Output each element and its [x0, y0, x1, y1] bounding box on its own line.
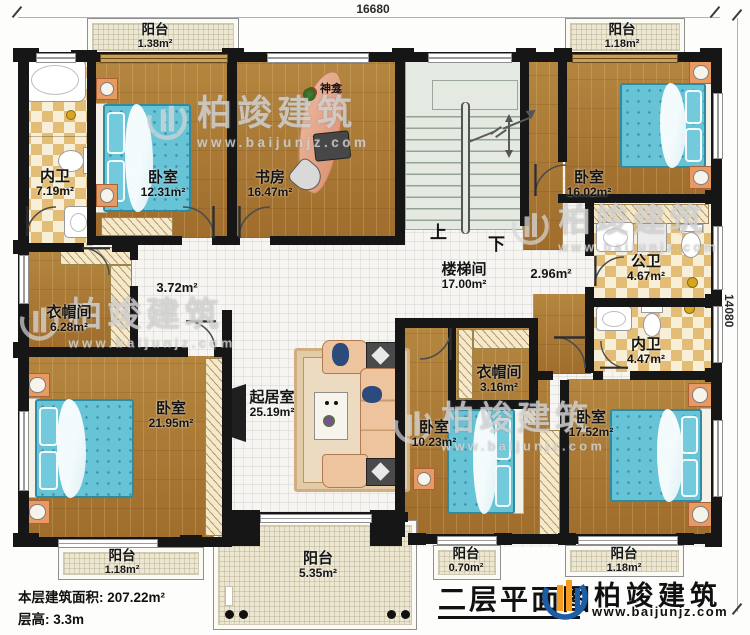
- table-decor-dot: [334, 401, 338, 405]
- wall: [130, 248, 138, 260]
- lamp: [692, 506, 708, 522]
- window: [713, 420, 723, 497]
- room-label-bedroom3: 卧室21.95m²: [149, 400, 194, 431]
- lamp: [692, 387, 708, 403]
- pillow: [107, 112, 125, 154]
- wall: [18, 347, 188, 357]
- balcony-gate-mark: [225, 586, 233, 606]
- wardrobe-cloak1-right: [110, 265, 132, 349]
- computer-monitor: [313, 130, 352, 162]
- wall-pier: [676, 533, 694, 545]
- wall: [222, 310, 232, 537]
- wall: [585, 203, 594, 256]
- balcony-label-br1: 阳台0.70m²: [449, 546, 484, 574]
- lamp: [693, 170, 709, 185]
- balcony-label-tr: 阳台1.18m²: [605, 22, 640, 50]
- room-label-living: 起居室25.19m²: [249, 389, 294, 420]
- room-label-bedroom1: 卧室12.31m²: [141, 169, 186, 200]
- sink-basin: [603, 228, 628, 247]
- wall: [529, 328, 538, 409]
- toilet-tank: [679, 224, 703, 232]
- wall-pier: [554, 48, 572, 62]
- bed: [447, 409, 515, 514]
- stairs-up-label: 上: [430, 218, 447, 243]
- pillow: [495, 465, 511, 507]
- balcony-label-br2: 阳台1.18m²: [607, 546, 642, 574]
- lamp: [693, 65, 709, 80]
- window: [428, 53, 512, 63]
- stair-flight-arrow: [508, 120, 510, 152]
- balcony-label-bc: 阳台5.35m²: [299, 550, 337, 581]
- wall: [558, 52, 567, 162]
- room-label-neiwei2: 内卫4.47m²: [627, 336, 665, 367]
- door-arc: [420, 328, 452, 360]
- lamp: [417, 472, 431, 486]
- stair-landing: [432, 80, 518, 110]
- stairs-down-label: 下: [488, 230, 505, 255]
- wardrobe-bedroom1: [101, 217, 173, 236]
- toilet: [643, 313, 661, 337]
- side-table: [366, 458, 396, 486]
- window: [267, 53, 369, 63]
- wall: [87, 52, 96, 245]
- door-arc: [534, 164, 566, 196]
- balcony-column-dot: [401, 610, 410, 619]
- hall-floor-top-right: [523, 60, 563, 250]
- person: [362, 386, 382, 403]
- brand-logo-icon: [538, 570, 592, 624]
- pillow: [39, 451, 58, 490]
- floor-drain: [66, 110, 76, 120]
- side-table: [366, 342, 396, 370]
- floor-area-line: 本层建筑面积: 207.22m²: [18, 586, 165, 606]
- blanket: [473, 409, 497, 514]
- floor-height-label: 层高:: [18, 612, 50, 627]
- wall-pier: [13, 240, 29, 254]
- wall: [96, 236, 182, 245]
- wall: [585, 307, 594, 373]
- shower-tray: [637, 223, 667, 252]
- room-label-study: 书房16.47m²: [248, 169, 293, 200]
- window: [437, 536, 497, 545]
- window: [19, 255, 29, 304]
- pillow: [681, 459, 698, 497]
- balcony-column-dot: [225, 610, 234, 619]
- nightstand: [688, 502, 713, 527]
- shrine-plant: [303, 88, 316, 101]
- wall: [227, 52, 237, 245]
- pillow: [685, 128, 702, 162]
- wardrobe-cloak2-left: [458, 329, 473, 399]
- wall: [395, 52, 405, 245]
- wall: [593, 371, 603, 380]
- armchair: [322, 454, 368, 488]
- dimension-line-right: [737, 18, 738, 612]
- balcony-column-dot: [387, 610, 396, 619]
- closet-above-gongwei: [590, 204, 709, 224]
- wardrobe-between-bedrooms: [539, 430, 560, 536]
- nightstand: [689, 61, 713, 84]
- brand-url: www.baijunjz.com: [592, 604, 728, 619]
- sink-counter: [596, 222, 634, 252]
- window: [578, 536, 678, 545]
- window: [713, 93, 723, 159]
- side-table-decor: [371, 462, 389, 480]
- toilet-tank: [641, 306, 663, 313]
- stair-rail: [461, 102, 470, 234]
- floor-drain: [687, 277, 698, 288]
- toilet: [681, 232, 701, 258]
- wall: [585, 298, 722, 307]
- pillow: [685, 90, 702, 124]
- blanket: [657, 409, 683, 502]
- wall-pier: [228, 510, 260, 546]
- blanket: [57, 399, 86, 498]
- bed: [620, 83, 706, 168]
- door-arc: [82, 247, 110, 275]
- wall-pier: [13, 342, 29, 358]
- room-label-shrine: 神龛: [320, 80, 342, 96]
- sink-basin: [602, 311, 626, 327]
- wall-pier: [516, 48, 536, 62]
- wall: [520, 60, 529, 226]
- door-arc: [600, 341, 628, 369]
- door-arc: [554, 336, 586, 368]
- person: [332, 343, 349, 366]
- wall: [560, 380, 569, 537]
- room-label-cloak1: 衣帽间6.28m²: [46, 304, 91, 335]
- wardrobe-cloak2-top: [473, 329, 531, 349]
- floor-plan-page: 上 下 柏竣建筑 www.baijunjz.com 柏竣建筑 www.baiju…: [0, 0, 750, 635]
- lamp: [29, 504, 45, 520]
- floor-height-value: 3.3m: [53, 612, 84, 627]
- lamp: [100, 82, 114, 96]
- stair-arrowhead: [505, 114, 513, 122]
- room-label-bedroom5: 卧室17.52m²: [569, 409, 614, 440]
- floor-area-value: 207.22m²: [107, 590, 165, 605]
- wall-pier: [705, 368, 722, 382]
- wall: [212, 236, 240, 245]
- wall-pier: [180, 535, 202, 547]
- balcony-label-tl: 阳台1.38m²: [138, 22, 173, 50]
- nightstand: [413, 468, 435, 490]
- nightstand: [689, 166, 713, 189]
- balcony-label-bl: 阳台1.18m²: [105, 548, 140, 576]
- wall: [270, 236, 405, 245]
- floor-height-line: 层高: 3.3m: [18, 608, 84, 628]
- wall-pier: [700, 48, 722, 62]
- wall: [395, 328, 405, 537]
- balcony-column-dot: [239, 610, 248, 619]
- bathtub-basin: [31, 65, 79, 95]
- coffee-table: [314, 392, 348, 440]
- stair-arrowhead: [505, 150, 513, 158]
- wall: [448, 400, 538, 409]
- blanket: [660, 83, 686, 168]
- table-flowers: [323, 415, 335, 427]
- wall: [130, 286, 138, 350]
- balcony-door-sill: [572, 54, 678, 63]
- dimension-top-value: 16680: [343, 2, 403, 16]
- door-arc: [26, 206, 56, 236]
- sink-counter: [596, 306, 632, 331]
- bathtub: [24, 58, 86, 102]
- nightstand: [96, 184, 118, 207]
- nightstand: [688, 383, 712, 407]
- room-label-stairwell: 楼梯间17.00m²: [441, 261, 486, 292]
- dimension-line-top: [18, 17, 720, 18]
- dimension-right-value: 14080: [722, 294, 736, 327]
- window: [19, 411, 29, 491]
- pillow: [39, 407, 58, 446]
- bed: [610, 409, 702, 502]
- sofa: [360, 368, 400, 460]
- wall-pier: [705, 533, 722, 547]
- floor-area-label: 本层建筑面积:: [18, 590, 104, 605]
- door-arc: [183, 206, 215, 238]
- door-arc: [238, 206, 270, 238]
- lamp: [100, 188, 114, 203]
- wall: [395, 318, 538, 328]
- sink-basin: [70, 213, 87, 232]
- wall-pier: [392, 48, 414, 62]
- side-table-decor: [371, 346, 389, 364]
- wall-pier: [558, 533, 576, 545]
- wall-pier: [408, 533, 426, 545]
- room-label-gongwei: 公卫4.67m²: [627, 253, 665, 284]
- room-label-bedroom2: 卧室16.02m²: [567, 169, 612, 200]
- door-arc: [594, 256, 624, 286]
- pillow: [495, 418, 511, 460]
- hall-area-right: 2.96m²: [530, 266, 571, 281]
- window: [58, 539, 158, 548]
- nightstand: [96, 78, 118, 100]
- window: [713, 226, 723, 290]
- table-decor-dot: [325, 401, 329, 405]
- balcony-door-sill: [100, 54, 228, 63]
- wall-pier: [13, 533, 39, 547]
- tv: [232, 384, 246, 442]
- pillow: [681, 416, 698, 454]
- bath-divider-line: [22, 136, 88, 137]
- door-arc: [186, 320, 216, 350]
- wall-pier: [705, 190, 722, 204]
- room-label-neiwei1: 内卫7.19m²: [36, 168, 74, 199]
- window: [260, 514, 372, 523]
- window: [36, 53, 76, 63]
- hall-area-left: 3.72m²: [156, 280, 197, 295]
- room-label-cloak2: 衣帽间3.16m²: [476, 364, 521, 395]
- lamp: [29, 377, 45, 393]
- room-label-bedroom4: 卧室10.23m²: [412, 419, 457, 450]
- bed: [35, 399, 134, 498]
